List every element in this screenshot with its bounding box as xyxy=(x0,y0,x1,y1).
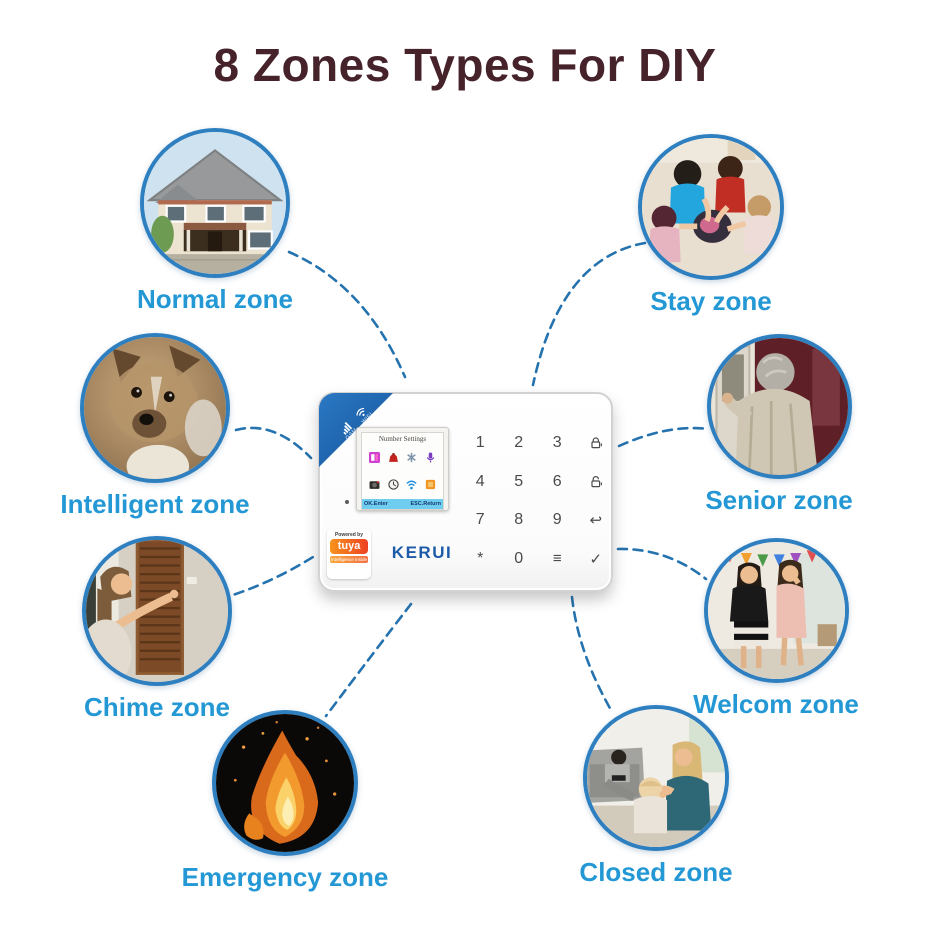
menu-key-icon: ≡ xyxy=(553,550,562,567)
zone-stay: Stay zone xyxy=(591,134,831,317)
children-playing-image xyxy=(642,138,780,276)
zone-intelligent: Intelligent zone xyxy=(35,333,275,520)
normal-zone-photo xyxy=(140,128,290,278)
fan-icon xyxy=(406,452,417,463)
key-4: 4 xyxy=(476,473,485,491)
tuya-subtitle: Intelligence Inside xyxy=(330,556,368,563)
zone-label-intelligent: Intelligent zone xyxy=(35,489,275,520)
alarm-panel: GSM WIFI Number Settings xyxy=(318,392,613,592)
zone-senior: Senior zone xyxy=(659,334,899,516)
keypad: 1 2 3 4 5 6 7 8 9 ↩ * 0 ≡ ✓ xyxy=(461,424,615,578)
lcd-icon-grid xyxy=(362,443,443,499)
zone-welcom: Welcom zone xyxy=(656,538,896,720)
family-livingroom-image xyxy=(587,709,725,847)
lcd-screen: Number Settings OK.Enter ESC.Return xyxy=(356,427,449,511)
tuya-logo: tuya xyxy=(330,539,368,554)
zone-normal: Normal zone xyxy=(95,128,335,315)
women-party-image xyxy=(708,542,845,679)
page-title: 8 Zones Types For DIY xyxy=(0,38,930,92)
welcom-zone-photo xyxy=(704,538,849,683)
back-key-icon: ↩ xyxy=(589,511,602,529)
zone-label-normal: Normal zone xyxy=(95,284,335,315)
connector-emergency-zone xyxy=(326,604,411,716)
woman-doorbell-image xyxy=(86,540,228,682)
key-5: 5 xyxy=(514,473,523,491)
phonebook-icon xyxy=(369,452,380,463)
lcd-footer-bar: OK.Enter ESC.Return xyxy=(362,499,443,509)
closed-zone-photo xyxy=(583,705,729,851)
zone-chime: Chime zone xyxy=(37,536,277,723)
arm-lock-icon xyxy=(589,436,603,450)
disarm-lock-icon xyxy=(589,475,603,489)
house-exterior-image xyxy=(144,132,286,274)
key-star: * xyxy=(477,550,483,568)
key-8: 8 xyxy=(514,511,523,529)
clock-icon xyxy=(388,479,399,490)
zone-label-stay: Stay zone xyxy=(591,286,831,317)
fire-image xyxy=(216,714,354,852)
confirm-key-icon: ✓ xyxy=(589,550,602,568)
chime-zone-photo xyxy=(82,536,232,686)
key-0: 0 xyxy=(514,550,523,568)
tuya-badge: Powered by tuya Intelligence Inside xyxy=(327,529,371,579)
kerui-logo: KERUI xyxy=(384,543,460,563)
key-9: 9 xyxy=(553,511,562,529)
camera-icon xyxy=(369,479,380,490)
emergency-zone-photo xyxy=(212,710,358,856)
stay-zone-photo xyxy=(638,134,784,280)
microphone-icon xyxy=(425,452,436,463)
key-2: 2 xyxy=(514,434,523,452)
senior-zone-photo xyxy=(707,334,852,479)
zone-label-closed: Closed zone xyxy=(536,857,776,888)
wifi-signal-icon xyxy=(406,479,417,490)
lcd-esc-return: ESC.Return xyxy=(410,501,441,507)
led-dot xyxy=(345,500,349,504)
alarm-bag-icon xyxy=(388,452,399,463)
puppy-image xyxy=(84,337,226,479)
zone-closed: Closed zone xyxy=(536,705,776,888)
key-6: 6 xyxy=(553,473,562,491)
zone-label-emergency: Emergency zone xyxy=(165,862,405,893)
poster: 8 Zones Types For DIY xyxy=(0,0,930,930)
lcd-title: Number Settings xyxy=(362,433,443,443)
storage-icon xyxy=(425,479,436,490)
zone-emergency: Emergency zone xyxy=(165,710,405,893)
key-3: 3 xyxy=(553,434,562,452)
intelligent-zone-photo xyxy=(80,333,230,483)
key-1: 1 xyxy=(476,434,485,452)
zone-label-senior: Senior zone xyxy=(659,485,899,516)
lcd-ok-enter: OK.Enter xyxy=(364,501,388,507)
powered-by-label: Powered by xyxy=(330,532,368,538)
key-7: 7 xyxy=(476,511,485,529)
connector-closed-zone xyxy=(572,597,611,710)
elderly-person-image xyxy=(711,338,848,475)
